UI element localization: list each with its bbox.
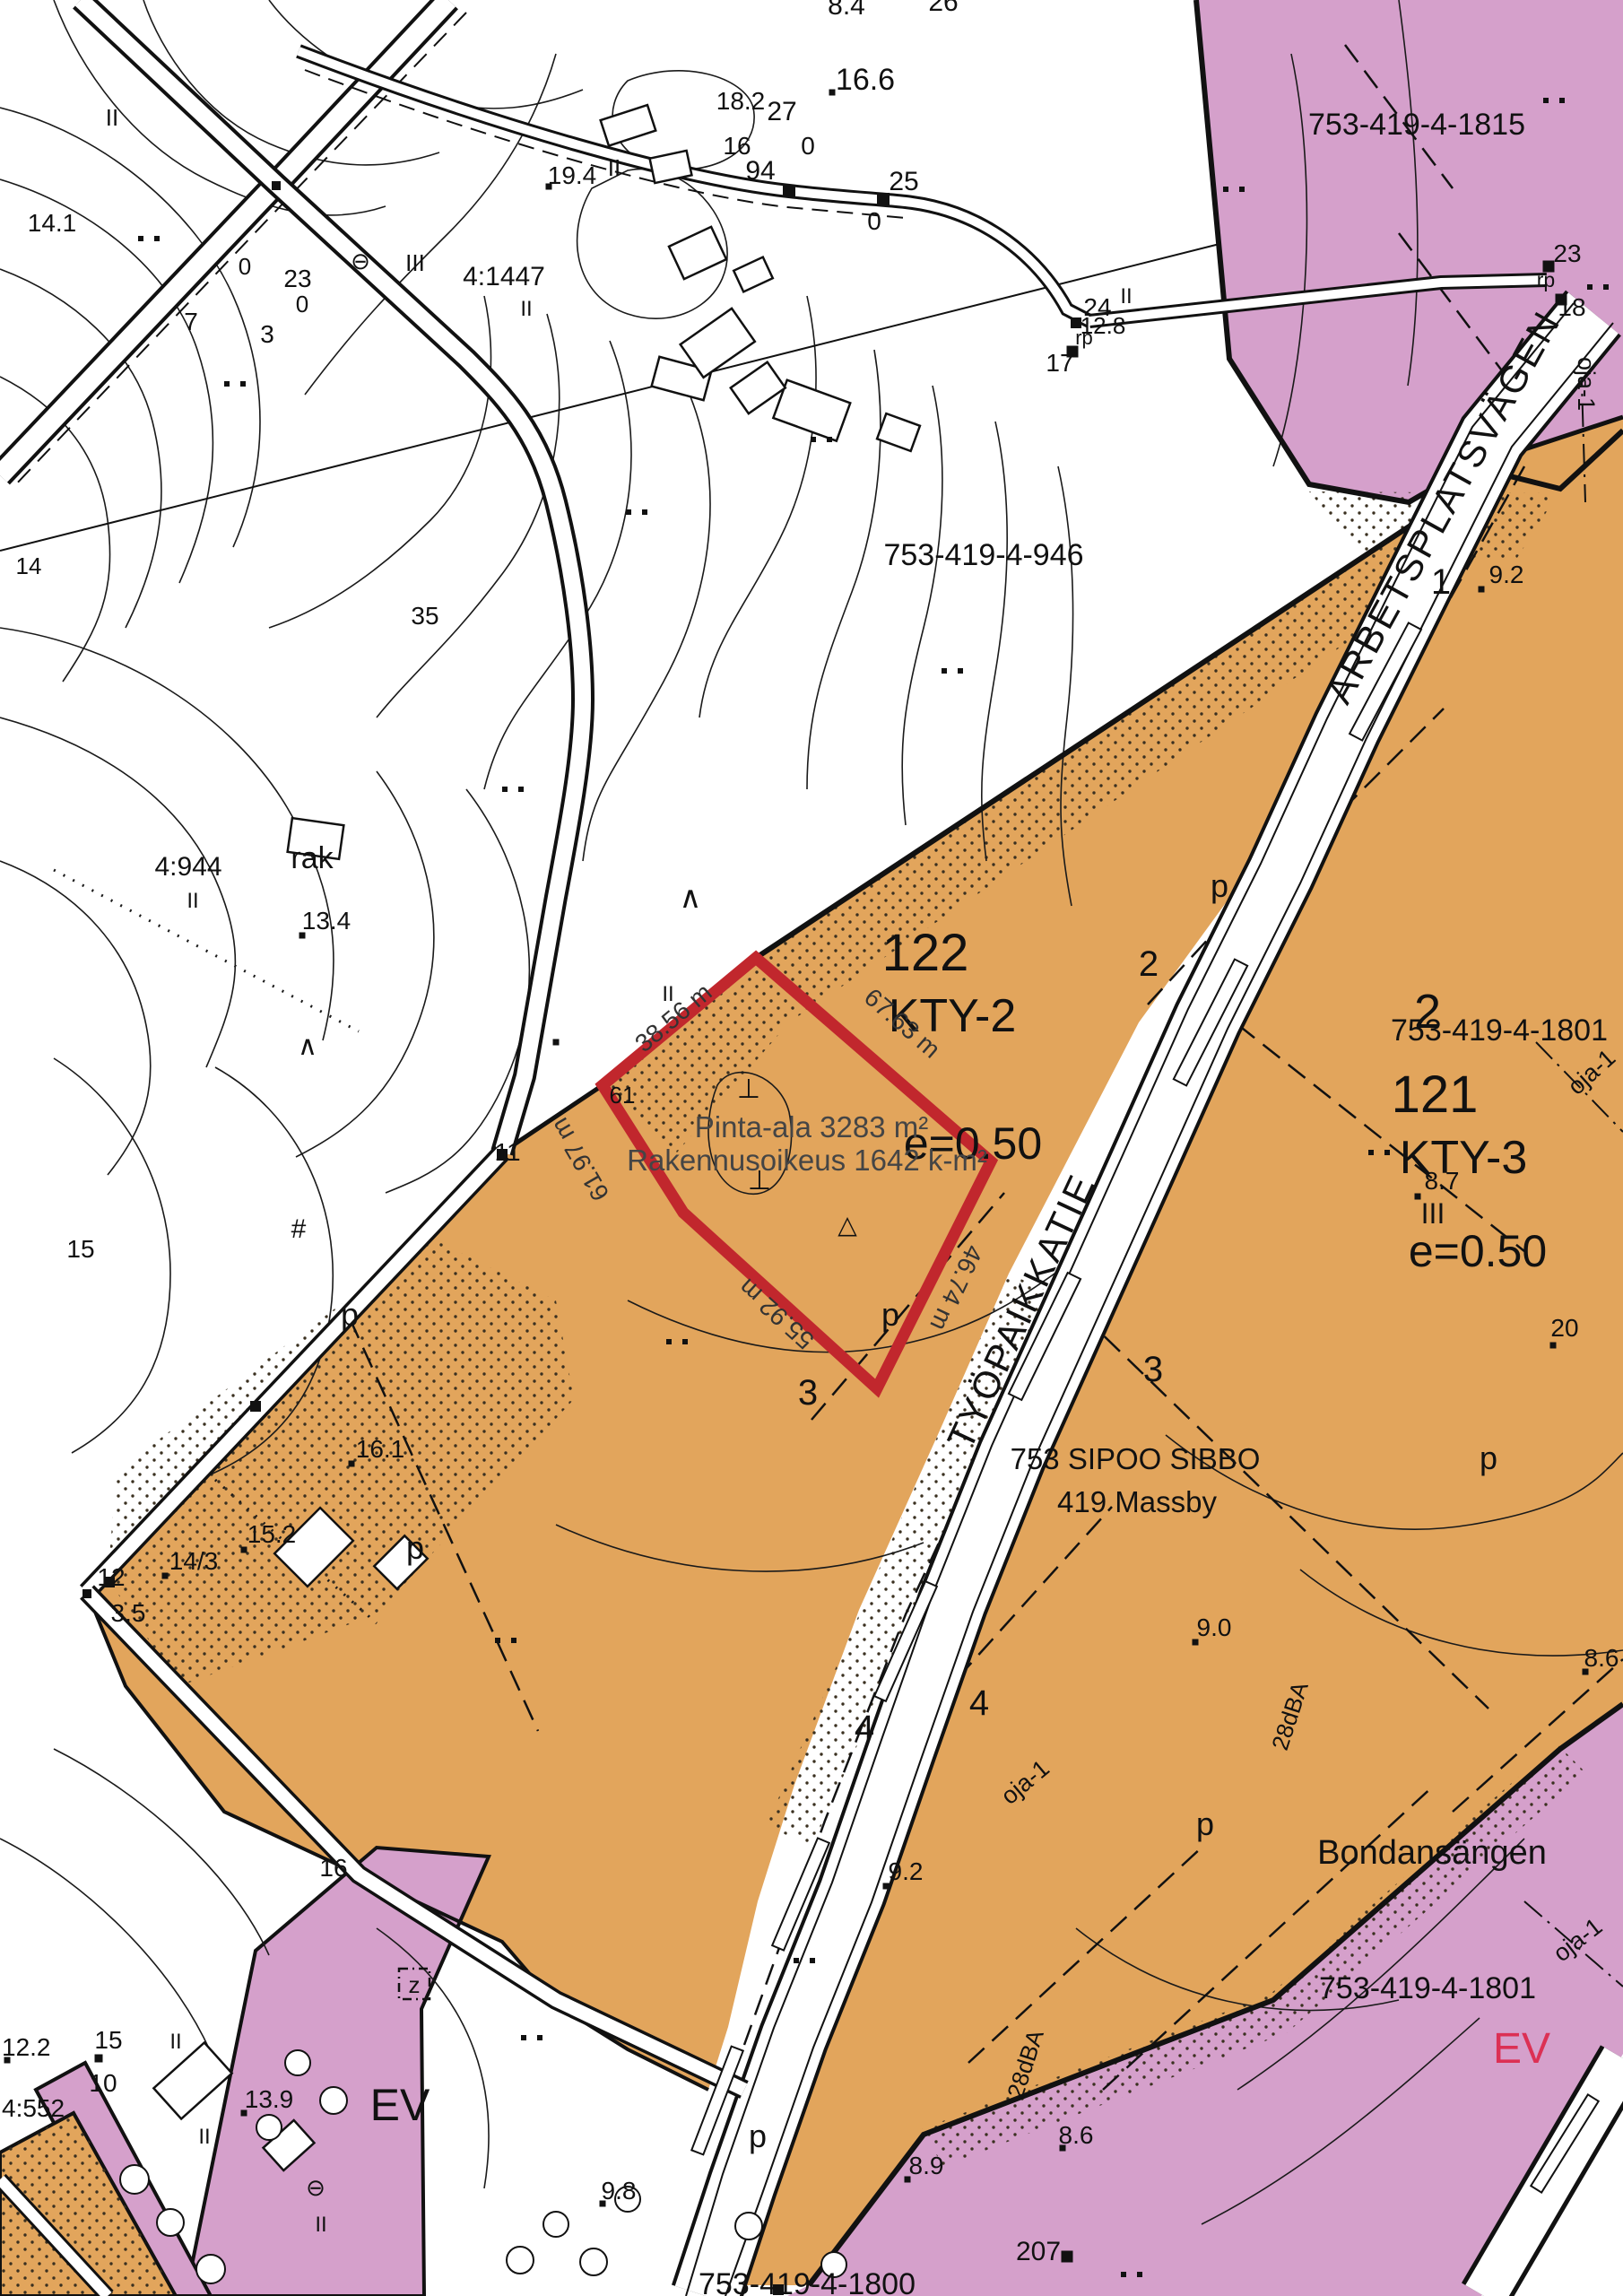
map-label: 121 bbox=[1392, 1065, 1479, 1124]
survey-point bbox=[272, 181, 281, 190]
map-label: 14.1 bbox=[28, 209, 77, 237]
survey-point bbox=[1479, 587, 1485, 593]
map-label: 9.2 bbox=[1489, 561, 1524, 588]
map-label: △ bbox=[838, 1211, 857, 1239]
survey-point bbox=[1062, 2251, 1073, 2263]
map-label: 207 bbox=[1016, 2237, 1061, 2266]
map-label: 753 SIPOO SIBBO bbox=[1011, 1442, 1261, 1475]
map-label: ⊖ bbox=[306, 2174, 325, 2201]
boundary-dot bbox=[511, 1638, 516, 1643]
boundary-dot bbox=[138, 236, 143, 241]
map-label: 8.4 bbox=[828, 0, 865, 21]
map-label: KTY-3 bbox=[1400, 1132, 1528, 1184]
map-label: 9.2 bbox=[889, 1857, 924, 1885]
map-label: 3.5 bbox=[111, 1599, 146, 1627]
map-label: III bbox=[405, 249, 425, 276]
map-label: 18 bbox=[1558, 293, 1585, 321]
map-label: oja-1 bbox=[1573, 357, 1600, 411]
map-label: 13.9 bbox=[245, 2085, 294, 2113]
survey-point bbox=[553, 1039, 560, 1046]
map-label: 25 bbox=[889, 167, 918, 196]
map-label: 3 bbox=[1143, 1350, 1163, 1389]
map-label: 0 bbox=[296, 291, 308, 317]
boundary-dot bbox=[942, 668, 947, 674]
survey-point bbox=[829, 90, 836, 96]
boundary-dot bbox=[626, 509, 631, 515]
map-label: 7 bbox=[184, 308, 198, 335]
map-label: 15 bbox=[66, 1235, 94, 1263]
map-label: 3 bbox=[798, 1373, 818, 1413]
map-label: 8.9 bbox=[909, 2152, 944, 2179]
map-label: 0 bbox=[239, 253, 251, 280]
map-label: 753-419-4-1801 bbox=[1319, 1971, 1536, 2005]
map-label: EV bbox=[370, 2080, 430, 2130]
map-label: 753-419-4-1800 bbox=[699, 2267, 916, 2296]
map-label: 19.4 bbox=[548, 161, 597, 189]
map-label: II bbox=[520, 297, 532, 321]
boundary-dot bbox=[1543, 98, 1549, 103]
map-label: 419 Massby bbox=[1057, 1485, 1217, 1518]
boundary-dot bbox=[240, 381, 246, 387]
boundary-dot bbox=[1559, 98, 1565, 103]
map-label: 0 bbox=[867, 207, 881, 235]
map-label: 35 bbox=[411, 602, 438, 630]
survey-point bbox=[82, 1589, 91, 1598]
map-label: 8.6 bbox=[1584, 1644, 1619, 1672]
map-label: 15 bbox=[94, 2026, 122, 2054]
boundary-dot bbox=[1239, 187, 1245, 192]
map-label: 122 bbox=[882, 924, 969, 982]
boundary-dot bbox=[521, 2035, 526, 2040]
boundary-dot bbox=[827, 437, 832, 442]
map-label: 23 bbox=[283, 265, 311, 292]
map-label: 753-419-4-1801 bbox=[1391, 1013, 1608, 1048]
map-label: 4 bbox=[969, 1683, 989, 1723]
map-label: 23 bbox=[1553, 239, 1581, 267]
boundary-dot bbox=[1587, 284, 1593, 290]
map-label: 26 bbox=[928, 0, 958, 17]
map-label: II bbox=[169, 2030, 181, 2054]
map-label: ⊥ bbox=[737, 1074, 760, 1104]
map-label: 16.6 bbox=[836, 63, 895, 97]
boundary-dot bbox=[810, 1958, 815, 1963]
map-label: 4 bbox=[855, 1709, 874, 1748]
map-label: p bbox=[1480, 1439, 1497, 1476]
map-label: 4:944 bbox=[154, 852, 221, 882]
boundary-dot bbox=[1137, 2272, 1142, 2277]
map-label: 0 bbox=[801, 132, 815, 160]
map-label: rak bbox=[291, 841, 334, 875]
zoning-plan-map: 8.42616.618.2271694002519.414.1IIIIIII4:… bbox=[0, 0, 1623, 2296]
map-label: 10 bbox=[89, 2069, 117, 2097]
boundary-dot bbox=[1384, 1150, 1390, 1155]
map-label: 16 bbox=[319, 1854, 347, 1882]
survey-point bbox=[783, 185, 795, 197]
map-label: 8.7 bbox=[1425, 1167, 1460, 1195]
boundary-dot bbox=[1223, 187, 1228, 192]
map-label: II bbox=[106, 104, 118, 131]
boundary-dot bbox=[811, 437, 816, 442]
map-label: rp bbox=[1075, 326, 1093, 349]
boundary-dot bbox=[224, 381, 230, 387]
map-label: 3 bbox=[260, 320, 274, 348]
map-label: Rakennusoikeus 1642 k-m² bbox=[627, 1144, 987, 1177]
boundary-dot bbox=[666, 1339, 672, 1344]
map-label: 1 bbox=[1431, 562, 1451, 602]
survey-point bbox=[162, 1573, 169, 1579]
map-label: ∧ bbox=[680, 881, 702, 915]
map-label: 18.2 bbox=[716, 87, 766, 115]
boundary-dot bbox=[1121, 2272, 1126, 2277]
survey-point bbox=[1550, 1343, 1557, 1349]
map-label: 17 bbox=[1046, 349, 1073, 377]
map-label: II bbox=[1120, 284, 1132, 309]
map-label: 16.1 bbox=[356, 1435, 405, 1463]
boundary-dot bbox=[958, 668, 963, 674]
map-label: ∧ bbox=[298, 1031, 317, 1061]
map-label: # bbox=[291, 1214, 307, 1244]
survey-point bbox=[241, 1547, 247, 1553]
map-label: p bbox=[406, 1529, 424, 1566]
map-label: 753-419-4-946 bbox=[883, 538, 1083, 572]
map-label: 14/3 bbox=[169, 1547, 219, 1575]
boundary-dot bbox=[642, 509, 647, 515]
map-label: ⊥ bbox=[748, 1166, 771, 1196]
boundary-dot bbox=[502, 787, 508, 792]
map-label: II bbox=[608, 154, 621, 181]
survey-point bbox=[877, 193, 890, 205]
map-label: z bbox=[409, 1971, 421, 1998]
survey-point bbox=[95, 2055, 103, 2063]
map-label: Pinta-ala 3283 m² bbox=[695, 1110, 928, 1144]
boundary-dot bbox=[518, 787, 524, 792]
map-label: 11 bbox=[494, 1138, 520, 1166]
map-label: p bbox=[749, 2118, 767, 2154]
map-label: 8.6 bbox=[1059, 2121, 1094, 2149]
map-label: 61 bbox=[610, 1082, 636, 1109]
map-label: 2 bbox=[1139, 944, 1159, 984]
boundary-dot bbox=[1368, 1150, 1374, 1155]
map-label: 14 bbox=[16, 552, 42, 579]
boundary-dot bbox=[1603, 284, 1609, 290]
map-label: 9.8 bbox=[602, 2177, 637, 2205]
map-label: 20 bbox=[1550, 1314, 1578, 1342]
map-label: 9.0 bbox=[1197, 1613, 1232, 1641]
map-label: p bbox=[1196, 1805, 1214, 1842]
map-label: II bbox=[662, 982, 673, 1006]
map-label: 4:552 bbox=[2, 2094, 65, 2122]
map-label: 94 bbox=[745, 156, 775, 186]
map-canvas: 8.42616.618.2271694002519.414.1IIIIIII4:… bbox=[0, 0, 1623, 2296]
survey-point bbox=[349, 1461, 355, 1467]
map-label: EV bbox=[1493, 2025, 1550, 2073]
map-label: 27 bbox=[767, 97, 796, 126]
map-label: 15.2 bbox=[247, 1520, 297, 1548]
map-label: 13.4 bbox=[302, 907, 352, 935]
map-label: 12.2 bbox=[2, 2033, 51, 2061]
map-label: 4:1447 bbox=[463, 262, 545, 291]
map-label: III bbox=[1421, 1197, 1445, 1230]
survey-point bbox=[1415, 1194, 1421, 1200]
map-label: 12 bbox=[97, 1563, 125, 1591]
boundary-dot bbox=[154, 236, 160, 241]
map-label: Bondansängen bbox=[1317, 1834, 1547, 1872]
map-label: e=0.50 bbox=[1409, 1226, 1547, 1276]
map-label: 753-419-4-1815 bbox=[1308, 108, 1525, 142]
map-label: ⊖ bbox=[351, 248, 370, 274]
boundary-dot bbox=[794, 1958, 799, 1963]
map-label: p bbox=[881, 1296, 899, 1333]
survey-point bbox=[250, 1401, 261, 1412]
map-label: p bbox=[341, 1296, 359, 1333]
map-label: II bbox=[198, 2125, 210, 2149]
boundary-dot bbox=[495, 1638, 500, 1643]
map-label: II bbox=[187, 889, 198, 913]
boundary-dot bbox=[682, 1339, 688, 1344]
boundary-dot bbox=[537, 2035, 542, 2040]
map-label: II bbox=[315, 2213, 326, 2237]
map-label: rp bbox=[1537, 268, 1555, 291]
map-label: p bbox=[1211, 867, 1228, 904]
